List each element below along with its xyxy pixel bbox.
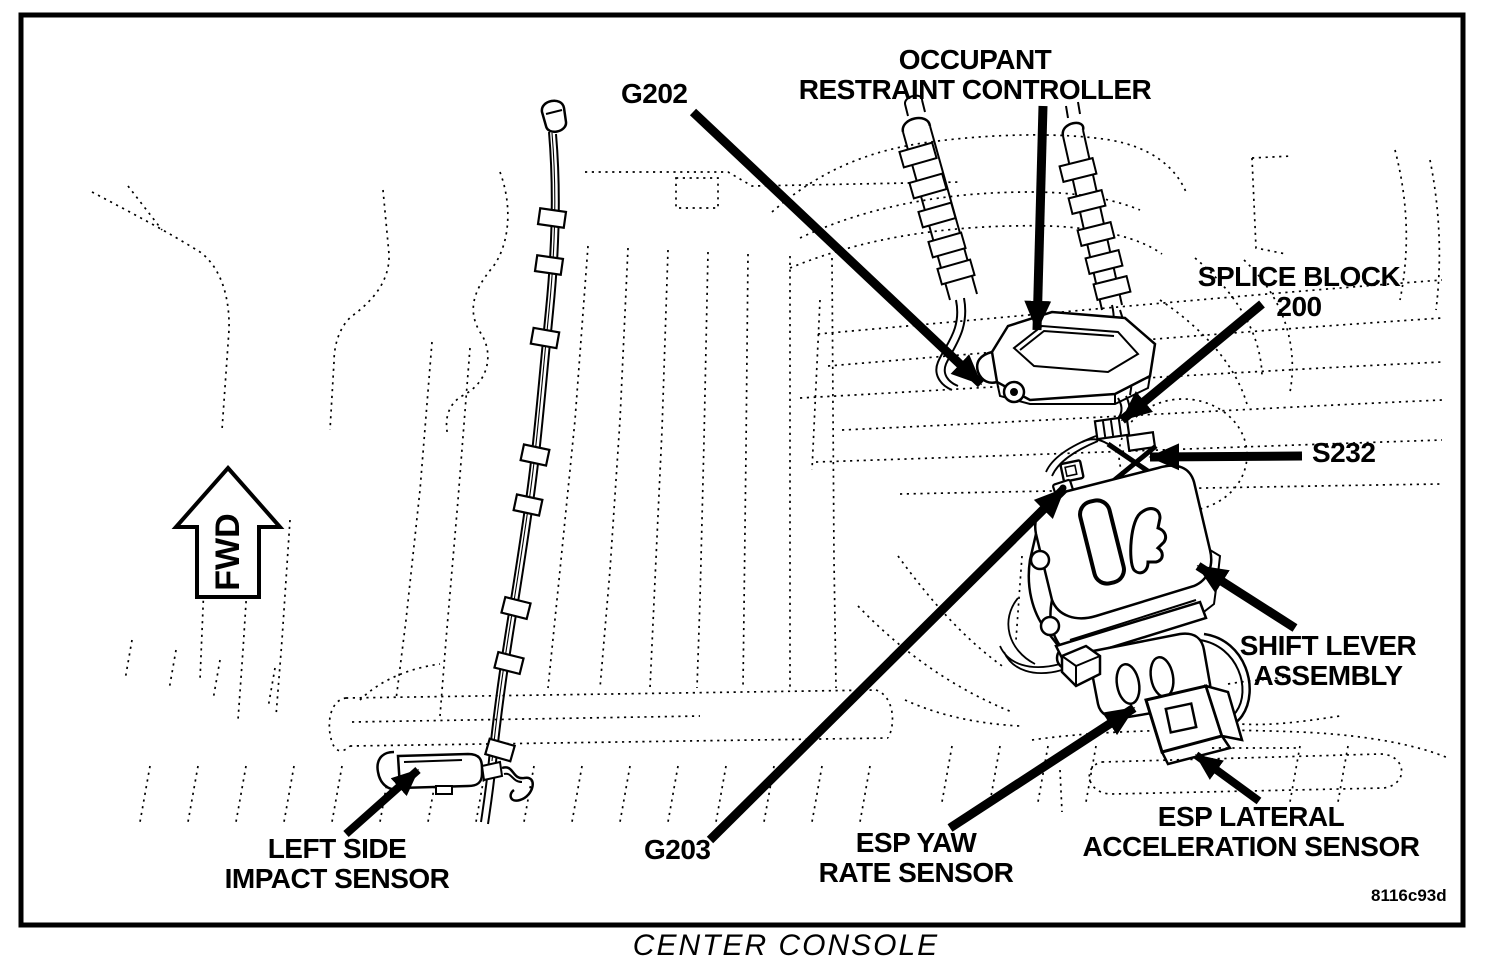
callout-line: OCCUPANT — [799, 45, 1151, 75]
callout-line: IMPACT SENSOR — [225, 864, 450, 894]
callout-line: ACCELERATION SENSOR — [1083, 832, 1420, 862]
arrow-s232 — [1150, 456, 1302, 457]
arrow-shift-lever-assembly — [1198, 566, 1295, 628]
callout-line: SPLICE BLOCK — [1198, 262, 1400, 292]
callout-line: RATE SENSOR — [819, 858, 1014, 888]
figure-page: FWD G202 OCCUPANT RESTRAINT CONTROLLER S… — [0, 0, 1504, 972]
fwd-arrow: FWD — [176, 468, 280, 597]
callout-line: ESP YAW — [819, 828, 1014, 858]
callout-line: 200 — [1198, 292, 1400, 322]
callout-esp-lateral-acceleration-sensor: ESP LATERAL ACCELERATION SENSOR — [1083, 802, 1420, 862]
callout-occupant-restraint-controller: OCCUPANT RESTRAINT CONTROLLER — [799, 45, 1151, 105]
occupant-restraint-controller-drawing — [977, 312, 1155, 424]
callout-esp-yaw-rate-sensor: ESP YAW RATE SENSOR — [819, 828, 1014, 888]
callout-g202: G202 — [621, 79, 688, 109]
callout-line: ESP LATERAL — [1083, 802, 1420, 832]
arrow-esp-lateral-acceleration-sensor — [1196, 755, 1259, 801]
callout-s232: S232 — [1312, 438, 1375, 468]
callout-g203: G203 — [644, 835, 711, 865]
callout-left-side-impact-sensor: LEFT SIDE IMPACT SENSOR — [225, 834, 450, 894]
figure-caption: CENTER CONSOLE — [633, 929, 939, 963]
callout-line: LEFT SIDE — [225, 834, 450, 864]
figure-code: 8116c93d — [1371, 886, 1447, 906]
callout-line: ASSEMBLY — [1240, 661, 1417, 691]
center-harness — [481, 101, 566, 824]
callout-splice-block-200: SPLICE BLOCK 200 — [1198, 262, 1400, 322]
callout-line: RESTRAINT CONTROLLER — [799, 75, 1151, 105]
fwd-arrow-label: FWD — [209, 513, 247, 590]
callout-shift-lever-assembly: SHIFT LEVER ASSEMBLY — [1240, 631, 1417, 691]
callout-line: SHIFT LEVER — [1240, 631, 1417, 661]
arrow-occupant-restraint-controller — [1037, 106, 1043, 330]
